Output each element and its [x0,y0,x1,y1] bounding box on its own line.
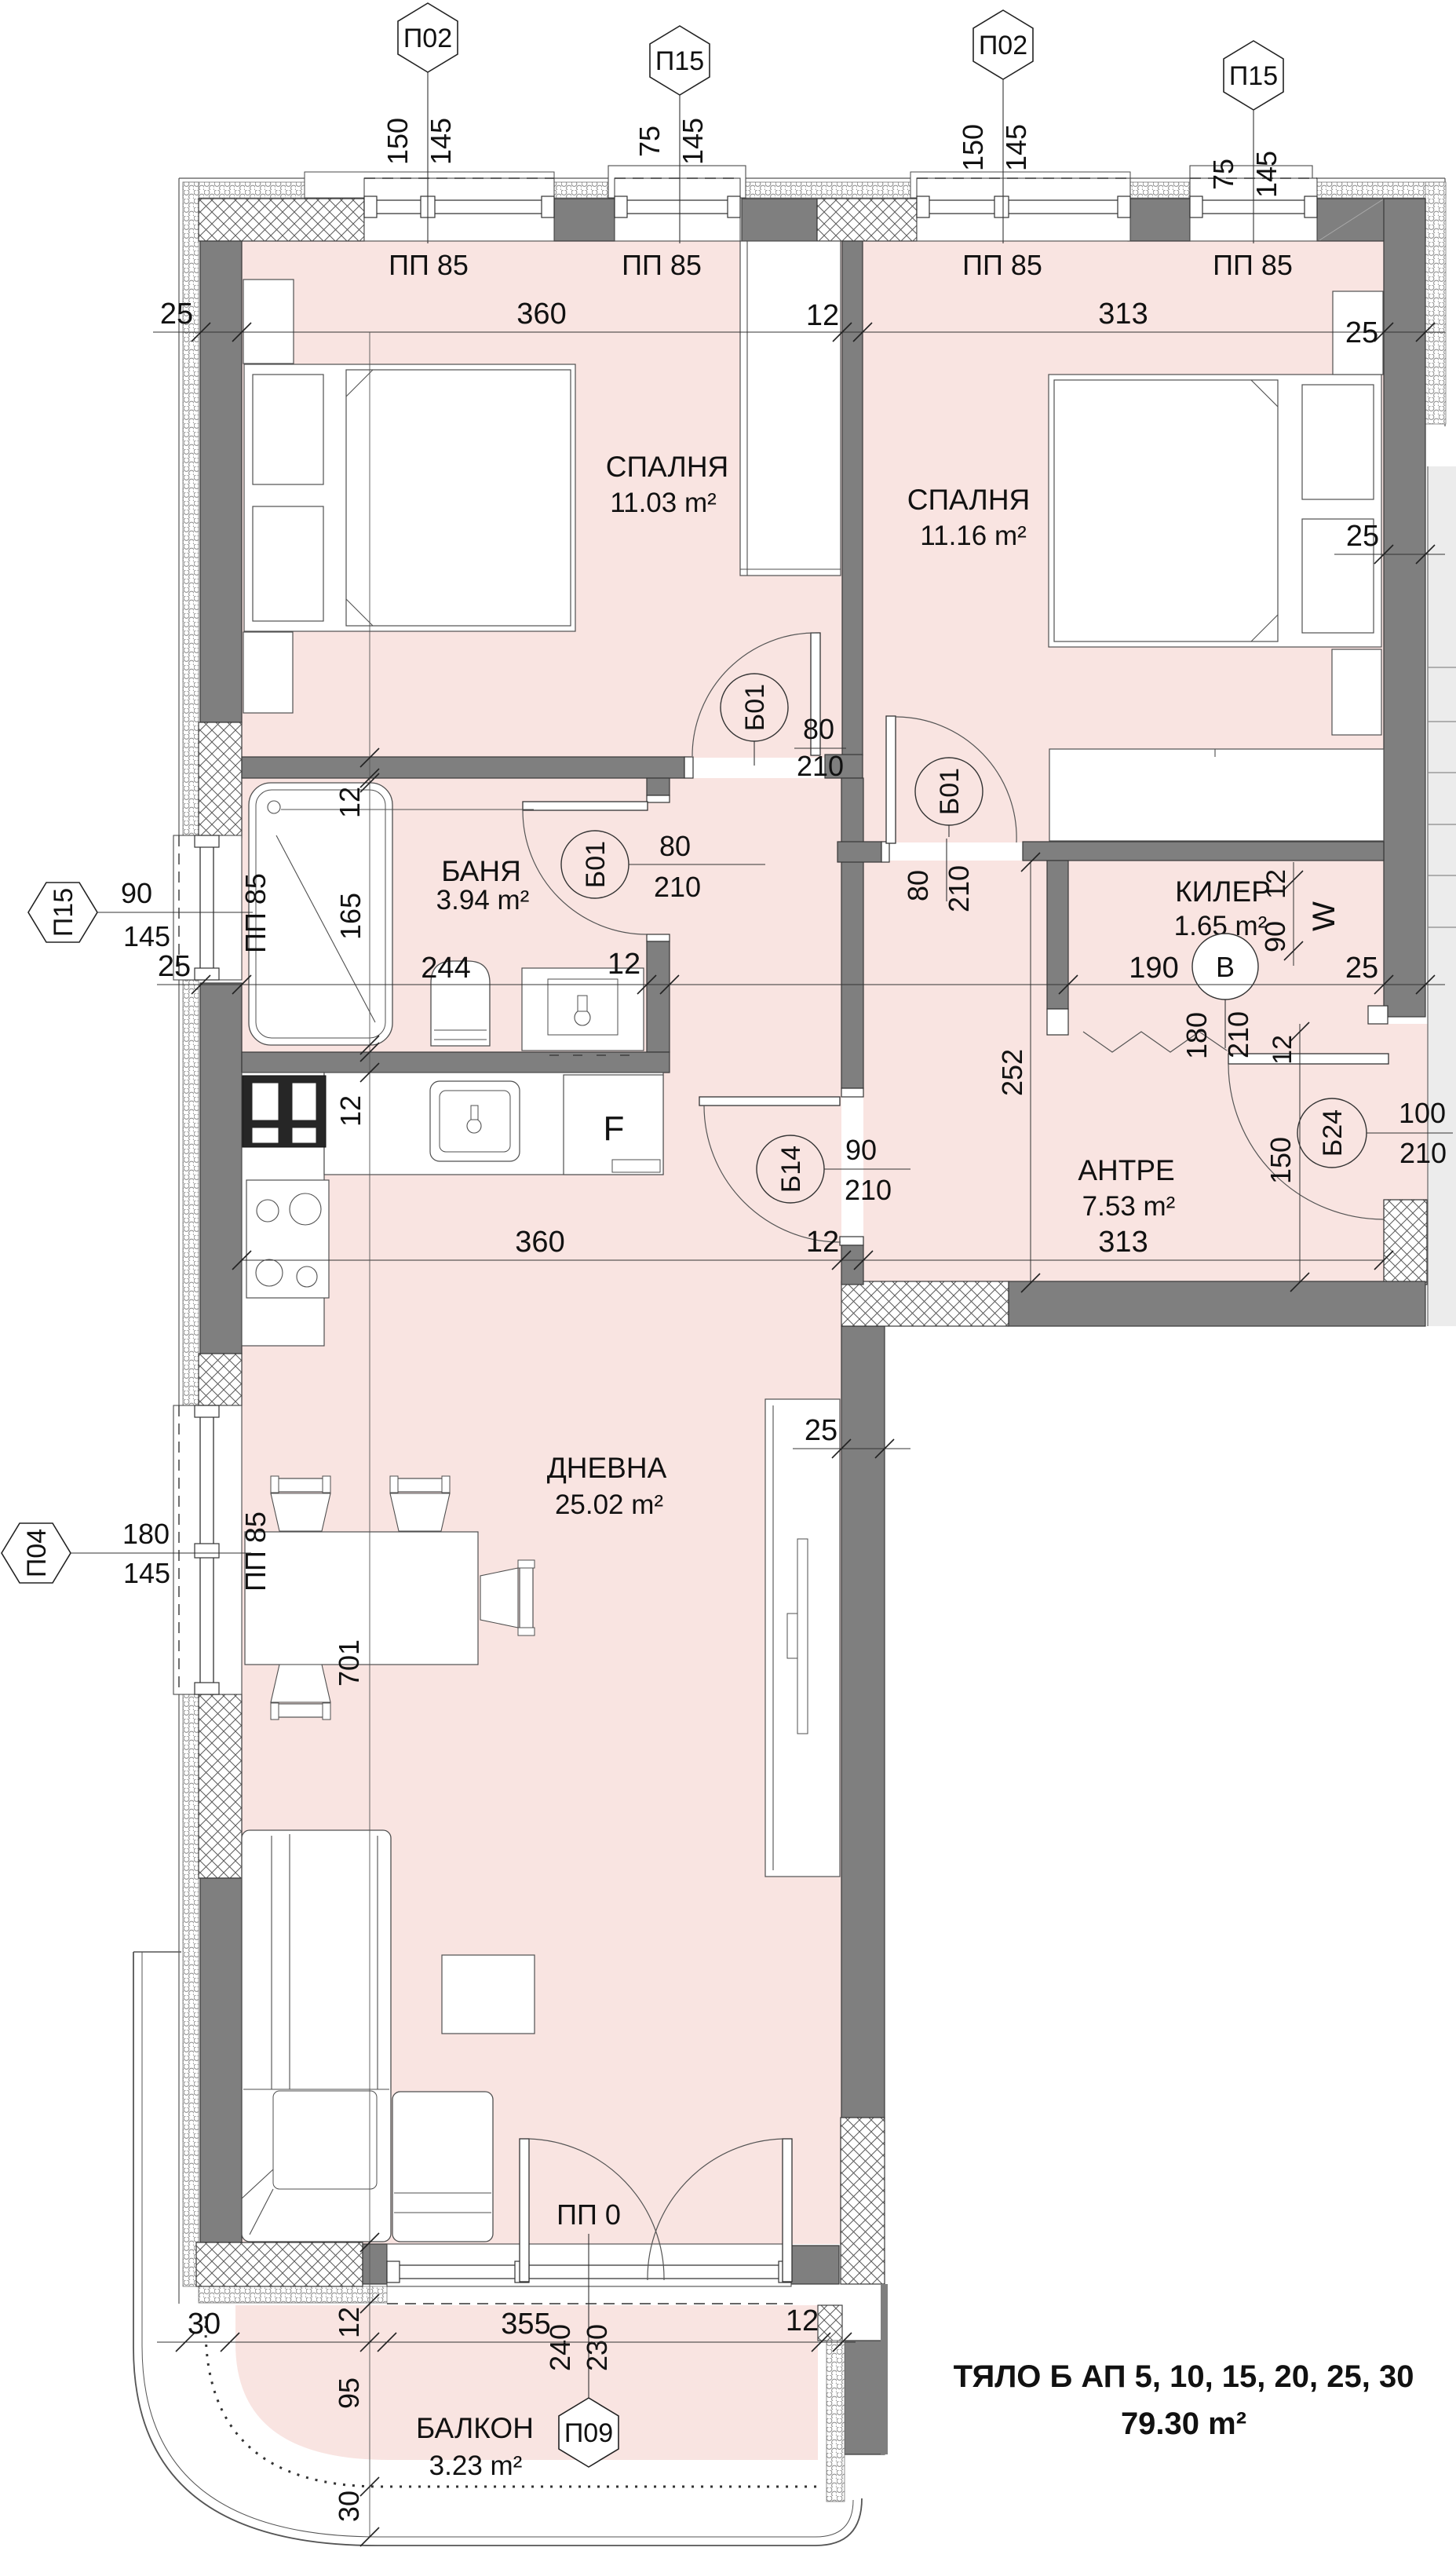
svg-text:ПП 85: ПП 85 [622,249,702,281]
svg-text:75: 75 [1207,159,1239,190]
svg-text:3.23 m²: 3.23 m² [429,2451,523,2481]
svg-text:ПП 85: ПП 85 [962,249,1042,281]
svg-text:12: 12 [806,299,839,332]
svg-text:11.16 m²: 11.16 m² [920,521,1027,551]
svg-text:150: 150 [957,124,989,171]
svg-text:80: 80 [902,870,934,901]
svg-text:Б01: Б01 [935,768,965,815]
svg-text:Б01: Б01 [740,684,770,731]
svg-text:210: 210 [797,750,844,782]
svg-text:180: 180 [122,1518,170,1550]
svg-text:Б24: Б24 [1318,1109,1348,1157]
svg-text:230: 230 [581,2324,613,2371]
svg-text:210: 210 [1222,1011,1254,1058]
svg-text:30: 30 [188,2308,221,2341]
svg-text:12: 12 [608,948,640,981]
svg-text:ПП 85: ПП 85 [1213,249,1293,281]
svg-text:12: 12 [334,787,366,818]
svg-text:П09: П09 [564,2418,613,2448]
svg-text:АНТРЕ: АНТРЕ [1078,1154,1174,1186]
svg-text:ПП 85: ПП 85 [389,249,469,281]
svg-text:П15: П15 [1229,61,1278,91]
svg-text:252: 252 [996,1049,1028,1096]
svg-text:12: 12 [334,1095,367,1127]
svg-text:СПАЛНЯ: СПАЛНЯ [606,451,729,483]
svg-text:12: 12 [1268,1035,1297,1065]
svg-text:190: 190 [1129,952,1178,985]
svg-text:313: 313 [1098,298,1148,331]
svg-text:210: 210 [845,1174,892,1206]
svg-text:150: 150 [381,118,414,165]
svg-text:25: 25 [1345,316,1378,349]
svg-text:244: 244 [421,952,470,985]
svg-text:В: В [1216,951,1235,983]
svg-text:25: 25 [1346,520,1379,553]
svg-text:145: 145 [425,118,457,165]
svg-text:ПП 85: ПП 85 [239,873,272,953]
svg-text:11.03 m²: 11.03 m² [610,488,717,518]
svg-text:30: 30 [333,2491,365,2522]
svg-text:ДНЕВНА: ДНЕВНА [547,1452,667,1484]
svg-text:100: 100 [1399,1097,1446,1129]
svg-text:W: W [1307,901,1341,931]
svg-text:ПП 85: ПП 85 [239,1511,272,1592]
svg-text:180: 180 [1180,1012,1213,1059]
svg-text:12: 12 [806,1226,839,1259]
svg-text:25: 25 [158,950,191,983]
svg-text:360: 360 [515,1226,564,1259]
svg-text:79.30 m²: 79.30 m² [1121,2407,1246,2441]
svg-text:145: 145 [1000,124,1032,171]
svg-text:165: 165 [334,893,367,940]
svg-text:П04: П04 [22,1529,52,1577]
svg-text:12: 12 [786,2304,819,2337]
svg-text:90: 90 [845,1134,877,1166]
svg-text:145: 145 [123,1557,170,1589]
svg-text:90: 90 [121,877,152,909]
svg-text:360: 360 [516,298,566,331]
svg-text:П15: П15 [655,46,704,76]
svg-text:80: 80 [659,830,691,862]
svg-text:12: 12 [1261,869,1291,899]
svg-text:П15: П15 [49,888,78,937]
svg-text:Б01: Б01 [581,841,611,888]
svg-text:12: 12 [333,2307,365,2338]
svg-text:КИЛЕР: КИЛЕР [1175,875,1271,908]
svg-text:25: 25 [1345,952,1378,985]
svg-text:Б14: Б14 [776,1146,806,1193]
svg-text:210: 210 [943,865,975,912]
svg-text:ПП 0: ПП 0 [556,2198,621,2231]
svg-text:210: 210 [1399,1137,1447,1169]
svg-text:355: 355 [501,2308,550,2341]
svg-text:90: 90 [1259,921,1291,952]
svg-text:П02: П02 [979,31,1027,60]
svg-text:145: 145 [1250,151,1283,198]
svg-text:25: 25 [805,1414,837,1447]
svg-text:П02: П02 [403,24,452,53]
svg-text:150: 150 [1264,1137,1297,1184]
svg-text:210: 210 [654,871,701,903]
svg-text:145: 145 [677,118,709,165]
svg-text:3.94 m²: 3.94 m² [436,885,530,916]
svg-text:F: F [604,1109,625,1148]
svg-text:701: 701 [333,1639,365,1687]
svg-text:313: 313 [1098,1226,1148,1259]
svg-text:95: 95 [333,2377,365,2409]
svg-text:25.02 m²: 25.02 m² [555,1489,663,1520]
svg-text:145: 145 [123,920,170,952]
svg-text:БАНЯ: БАНЯ [441,855,521,887]
svg-text:ТЯЛО Б АП 5, 10, 15, 20, 25, 3: ТЯЛО Б АП 5, 10, 15, 20, 25, 30 [954,2359,1414,2394]
svg-text:75: 75 [633,126,666,157]
svg-text:7.53 m²: 7.53 m² [1082,1191,1176,1222]
svg-text:80: 80 [803,713,834,745]
svg-text:25: 25 [160,298,193,331]
svg-text:БАЛКОН: БАЛКОН [416,2412,534,2444]
svg-text:СПАЛНЯ: СПАЛНЯ [907,484,1031,516]
